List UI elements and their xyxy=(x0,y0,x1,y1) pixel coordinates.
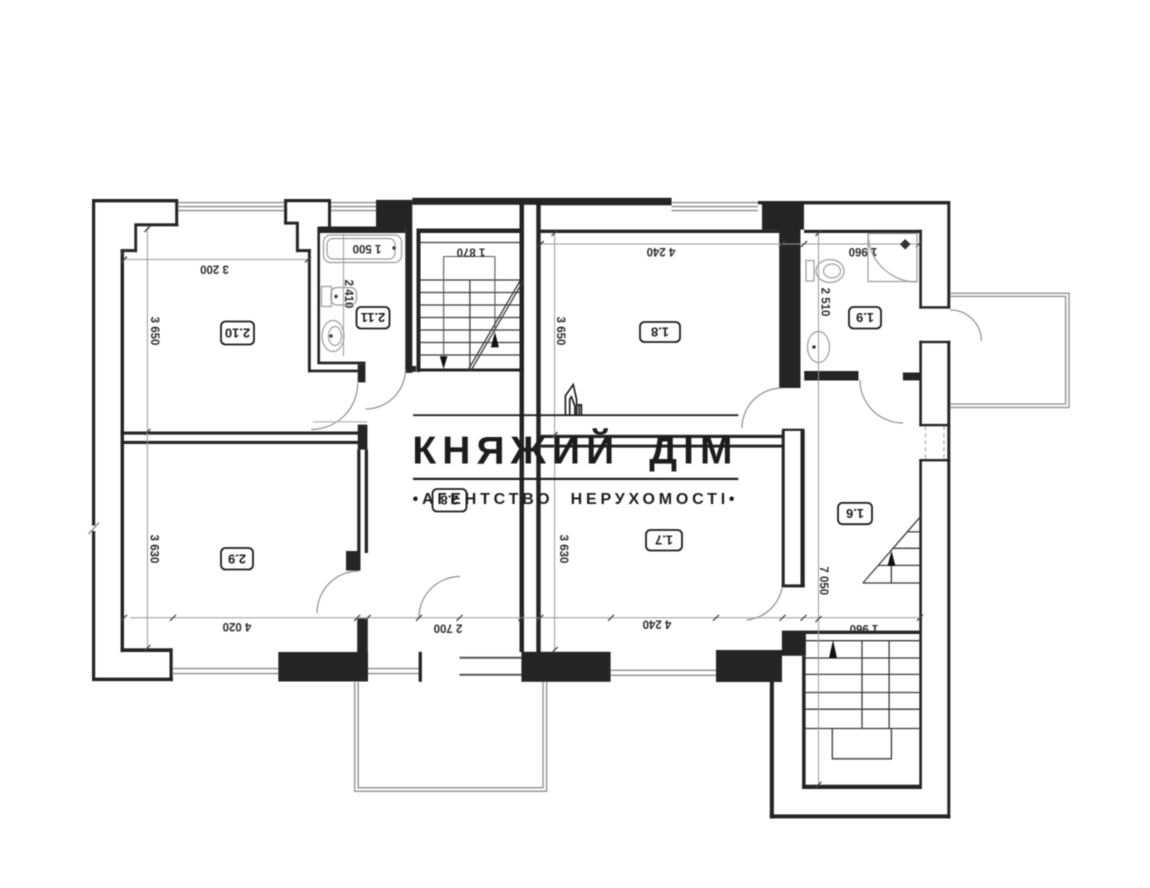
svg-text:3 630: 3 630 xyxy=(148,535,160,564)
svg-text:7 050: 7 050 xyxy=(817,566,829,595)
svg-text:3 200: 3 200 xyxy=(200,263,229,275)
svg-text:КНЯЖИЙ ДІМ: КНЯЖИЙ ДІМ xyxy=(412,428,738,473)
svg-text:2.11: 2.11 xyxy=(361,310,386,325)
svg-text:3 650: 3 650 xyxy=(554,317,566,346)
svg-text:2.9: 2.9 xyxy=(228,551,246,566)
svg-text:3 650: 3 650 xyxy=(148,317,160,346)
svg-text:1 500: 1 500 xyxy=(353,242,382,254)
svg-text:1.7: 1.7 xyxy=(655,533,673,548)
svg-text:•АГЕНТСТВО НЕРУХОМОСТІ•: •АГЕНТСТВО НЕРУХОМОСТІ• xyxy=(413,491,739,508)
svg-text:1.8: 1.8 xyxy=(651,325,669,340)
svg-text:2 510: 2 510 xyxy=(819,288,831,317)
svg-text:4 020: 4 020 xyxy=(223,620,252,632)
svg-text:2 410: 2 410 xyxy=(342,280,354,309)
svg-text:3 630: 3 630 xyxy=(557,535,569,564)
svg-text:4 240: 4 240 xyxy=(643,618,672,630)
svg-text:1.9: 1.9 xyxy=(856,310,874,325)
svg-text:2 700: 2 700 xyxy=(434,622,463,634)
svg-text:1 870: 1 870 xyxy=(457,246,486,258)
svg-text:1 960: 1 960 xyxy=(850,622,879,634)
svg-text:1.6: 1.6 xyxy=(846,506,864,521)
svg-text:2.10: 2.10 xyxy=(225,326,250,341)
svg-text:4 240: 4 240 xyxy=(647,245,676,257)
